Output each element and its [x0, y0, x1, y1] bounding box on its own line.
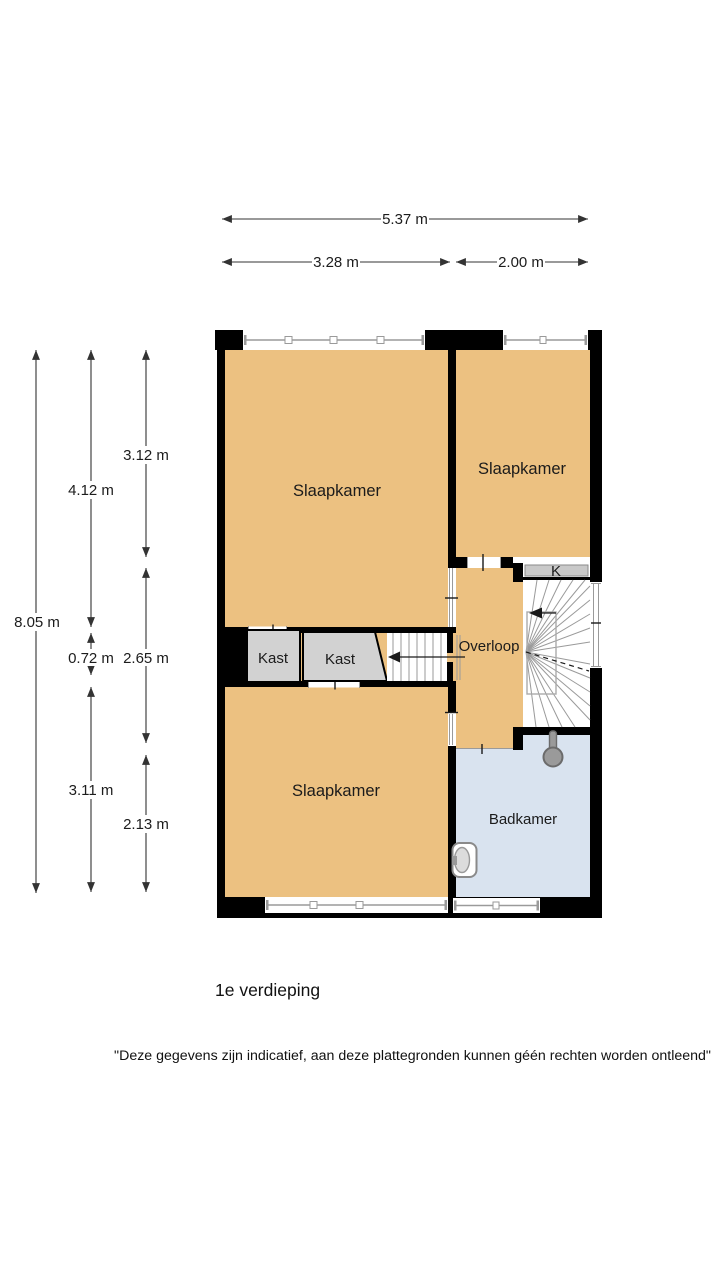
stair-wall-lower [447, 662, 453, 681]
dim-width-total: 5.37 m [382, 211, 428, 228]
label-bathroom: Badkamer [489, 811, 557, 828]
window-right-wall [590, 582, 602, 668]
dimension-width-right: 2.00 m [456, 253, 588, 271]
dimension-width-left: 3.28 m [222, 253, 450, 271]
label-bedroom-top-left: Slaapkamer [293, 482, 382, 500]
stairs-winder [523, 580, 590, 727]
window-top-left [243, 330, 425, 350]
wall-block-left-of-closets [225, 627, 247, 687]
wall-landing-bedroom-upper [448, 687, 456, 712]
window-bottom-left [265, 897, 448, 913]
window-bottom-right [453, 898, 540, 913]
label-small-closet: K [551, 563, 561, 580]
bathroom-step-wall [513, 727, 523, 750]
disclaimer-text: "Deze gegevens zijn indicatief, aan deze… [105, 1048, 720, 1064]
label-bedroom-top-right: Slaapkamer [478, 460, 567, 478]
left-wall [217, 350, 225, 897]
room-bedroom-top-right [456, 350, 590, 557]
window-top-right [503, 330, 588, 350]
dimension-width-total: 5.37 m [222, 210, 588, 228]
dimension-height-total: 8.05 m [13, 350, 60, 893]
dimension-col2-top: 4.12 m [68, 350, 115, 627]
dim-col2-mid: 0.72 m [68, 650, 114, 667]
label-landing: Overloop [459, 638, 520, 655]
washbasin-icon [452, 843, 477, 877]
wall-between-top-bedrooms [448, 350, 456, 568]
dimension-col2-bottom: 3.11 m [68, 687, 115, 892]
label-closet-left: Kast [258, 650, 289, 667]
dimension-col3-bottom: 2.13 m [123, 755, 170, 892]
dim-width-left: 3.28 m [313, 254, 359, 271]
label-bedroom-bottom: Slaapkamer [292, 782, 381, 800]
floor-title: 1e verdieping [215, 980, 320, 1001]
dim-col3-top: 3.12 m [123, 447, 169, 464]
bathroom-top-wall [513, 727, 602, 735]
room-landing [456, 568, 523, 748]
dim-width-right: 2.00 m [498, 254, 544, 271]
floor-plan-page: Slaapkamer Slaapkamer Slaapkamer Kast Ka… [0, 0, 720, 1280]
floor-plan-drawing: Slaapkamer Slaapkamer Slaapkamer Kast Ka… [0, 0, 720, 1280]
door-opening-bedroom-tr [467, 557, 501, 568]
dimensions-left: 8.05 m 4.12 m 0.72 m 3.11 m 3.12 m 2.65 … [13, 350, 170, 893]
dim-col2-bottom: 3.11 m [69, 782, 114, 799]
stair-wall-upper [447, 633, 453, 653]
dim-col3-mid: 2.65 m [123, 650, 169, 667]
dimension-col2-mid: 0.72 m [68, 633, 115, 675]
dim-height-total: 8.05 m [14, 614, 60, 631]
dimension-col3-mid: 2.65 m [123, 568, 170, 743]
dimensions-top: 5.37 m 3.28 m 2.00 m [222, 210, 588, 271]
label-closet-right: Kast [325, 651, 356, 668]
dim-col2-top: 4.12 m [68, 482, 114, 499]
dimension-col3-top: 3.12 m [123, 350, 170, 557]
dim-col3-bottom: 2.13 m [123, 816, 169, 833]
